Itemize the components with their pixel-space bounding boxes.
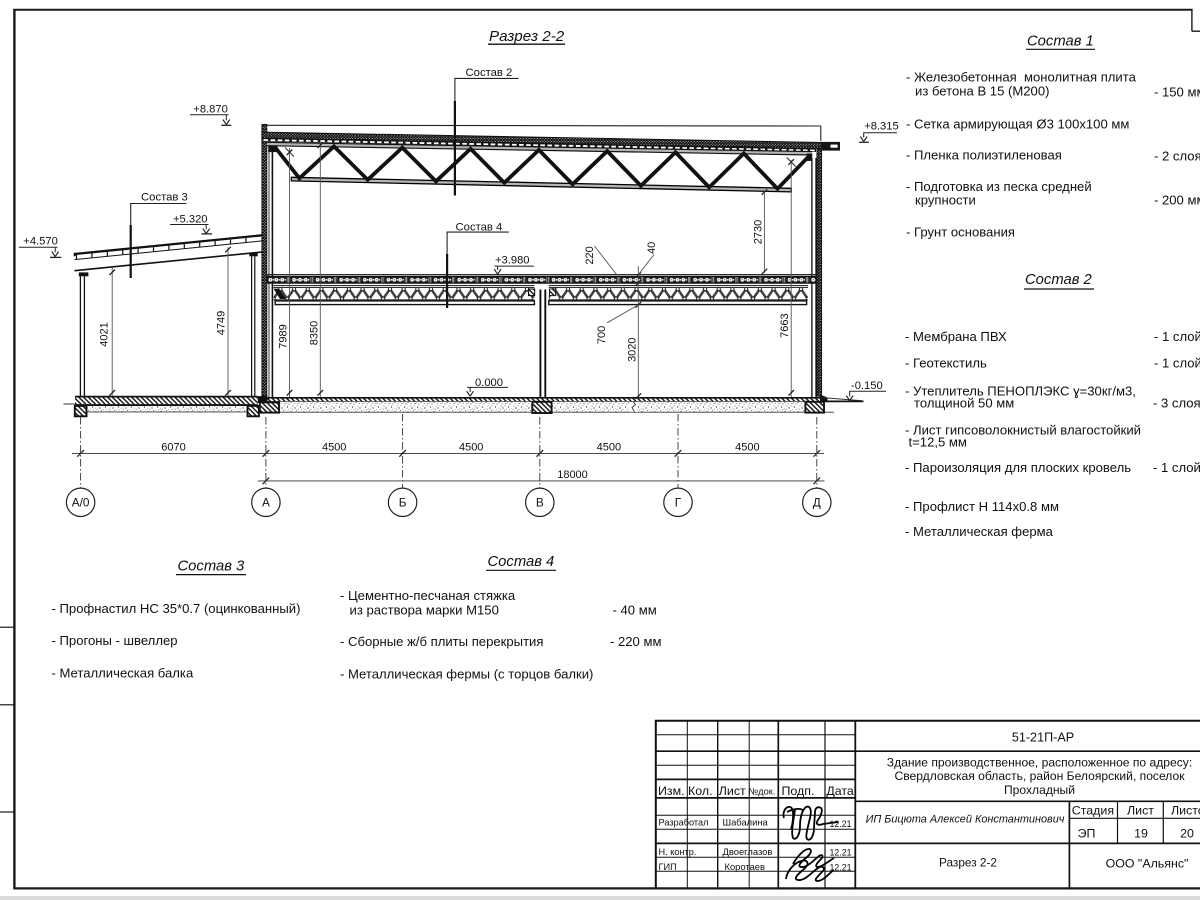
svg-text:+8.870: +8.870 (193, 104, 228, 116)
svg-text:4500: 4500 (322, 441, 346, 453)
svg-text:крупности: крупности (915, 193, 976, 208)
svg-text:- 40 мм: - 40 мм (613, 603, 657, 618)
svg-text:Лист: Лист (1127, 803, 1154, 817)
svg-text:ИП Бицюта Алексей Константинов: ИП Бицюта Алексей Константинович (866, 814, 1065, 826)
svg-text:- 2 слоя: - 2 слоя (1154, 149, 1200, 164)
svg-text:- 150 мм: - 150 мм (1154, 85, 1200, 100)
svg-text:- Геотекстиль: - Геотекстиль (905, 356, 987, 371)
svg-text:- 1 слой: - 1 слой (1154, 329, 1200, 344)
svg-text:А/0: А/0 (72, 496, 90, 510)
svg-text:- Профнастил НС 35*0.7 (оцинко: - Профнастил НС 35*0.7 (оцинкованный) (52, 601, 301, 616)
svg-text:Дата: Дата (826, 784, 854, 798)
svg-text:- Цементно-песчаная стяжка: - Цементно-песчаная стяжка (340, 588, 516, 603)
svg-text:Разрез 2-2: Разрез 2-2 (489, 28, 565, 45)
svg-text:- Металлическая балка: - Металлическая балка (52, 666, 194, 681)
svg-text:Разрез 2-2: Разрез 2-2 (939, 856, 997, 870)
svg-text:4500: 4500 (735, 441, 759, 453)
svg-text:- 1 слой: - 1 слой (1154, 356, 1200, 371)
svg-text:+8.315: +8.315 (864, 121, 899, 133)
svg-text:Состав 2: Состав 2 (466, 67, 513, 79)
svg-text:А: А (262, 496, 270, 510)
svg-text:12.21: 12.21 (830, 847, 852, 857)
svg-text:из раствора марки М150: из раствора марки М150 (350, 603, 499, 618)
svg-text:20: 20 (1180, 826, 1194, 840)
svg-text:Состав 3: Состав 3 (141, 192, 188, 204)
svg-text:Д: Д (813, 496, 821, 510)
svg-text:из бетона В 15 (М200): из бетона В 15 (М200) (915, 84, 1050, 99)
svg-text:ЭП: ЭП (1078, 826, 1096, 840)
svg-text:- Сетка армирующая Ø3 100х100: - Сетка армирующая Ø3 100х100 мм (906, 117, 1129, 132)
svg-text:- Пленка полиэтиленовая: - Пленка полиэтиленовая (906, 148, 1062, 163)
svg-text:4749: 4749 (215, 311, 227, 335)
svg-text:Шабалина: Шабалина (723, 817, 769, 828)
svg-text:- Железобетонная монолитная п: - Железобетонная монолитная плита (906, 70, 1137, 85)
svg-text:толщиной 50 мм: толщиной 50 мм (914, 396, 1014, 411)
svg-text:Стадия: Стадия (1072, 803, 1114, 817)
svg-text:- Пароизоляция для плоских кро: - Пароизоляция для плоских кровель (905, 460, 1131, 475)
svg-text:Прохладный: Прохладный (1004, 783, 1075, 797)
svg-text:220: 220 (584, 246, 596, 264)
svg-text:- Металлическая фермы (с торцо: - Металлическая фермы (с торцов балки) (340, 667, 593, 682)
svg-text:Здание производственное, распо: Здание производственное, расположенное п… (887, 756, 1192, 770)
svg-text:- Мембрана ПВХ: - Мембрана ПВХ (905, 329, 1007, 344)
svg-text:- 220 мм: - 220 мм (610, 634, 662, 649)
svg-text:Состав 4: Состав 4 (488, 554, 555, 570)
svg-text:+3.980: +3.980 (495, 255, 530, 267)
svg-text:- Профлист Н 114х0.8 мм: - Профлист Н 114х0.8 мм (905, 499, 1059, 514)
svg-text:7989: 7989 (277, 324, 289, 348)
svg-text:Коротаев: Коротаев (725, 861, 766, 872)
svg-text:Листов: Листов (1171, 803, 1200, 817)
svg-text:- 3 слоя: - 3 слоя (1153, 396, 1200, 411)
svg-text:51-21П-АР: 51-21П-АР (1012, 731, 1074, 745)
svg-text:Лист: Лист (719, 784, 746, 798)
svg-text:7663: 7663 (779, 313, 791, 337)
svg-text:3020: 3020 (626, 337, 638, 361)
svg-text:4500: 4500 (459, 441, 483, 453)
svg-text:Г: Г (675, 496, 682, 510)
svg-text:19: 19 (1134, 826, 1148, 840)
svg-text:8350: 8350 (308, 321, 320, 345)
svg-text:t=12,5 мм: t=12,5 мм (909, 435, 967, 450)
svg-text:ГИП: ГИП (659, 862, 677, 872)
svg-text:Б: Б (399, 496, 407, 510)
svg-text:Состав 2: Состав 2 (1025, 272, 1093, 288)
svg-text:- Прогоны - швеллер: - Прогоны - швеллер (52, 633, 178, 648)
svg-text:4021: 4021 (98, 322, 110, 346)
svg-text:ООО "Альянс": ООО "Альянс" (1106, 857, 1189, 871)
svg-text:+5.320: +5.320 (173, 214, 208, 226)
svg-text:Подп.: Подп. (782, 784, 815, 798)
svg-text:Н. контр.: Н. контр. (659, 847, 697, 857)
svg-text:-0.150: -0.150 (851, 380, 883, 392)
svg-text:Свердловская область, район Бе: Свердловская область, район Белоярский, … (894, 769, 1185, 783)
svg-text:- Металлическая ферма: - Металлическая ферма (905, 524, 1054, 539)
svg-text:В: В (536, 496, 544, 510)
svg-text:Состав 1: Состав 1 (1027, 34, 1094, 50)
svg-text:- Сборные ж/б плиты перекрытия: - Сборные ж/б плиты перекрытия (340, 634, 543, 649)
svg-text:Двоеглазов: Двоеглазов (723, 846, 773, 857)
svg-text:№док.: №док. (748, 786, 775, 796)
svg-text:Разработал: Разработал (659, 818, 709, 828)
svg-text:Состав 3: Состав 3 (178, 559, 246, 575)
svg-text:- Грунт основания: - Грунт основания (906, 225, 1015, 240)
svg-text:6070: 6070 (161, 441, 185, 453)
svg-text:40: 40 (646, 242, 658, 254)
svg-text:2730: 2730 (752, 220, 764, 244)
svg-text:Кол.: Кол. (688, 784, 713, 798)
svg-text:- 200 мм: - 200 мм (1154, 193, 1200, 208)
svg-text:4500: 4500 (597, 441, 621, 453)
svg-text:Изм.: Изм. (658, 784, 685, 798)
svg-text:+4.570: +4.570 (23, 236, 58, 248)
svg-text:12.21: 12.21 (830, 819, 852, 829)
svg-text:700: 700 (596, 326, 608, 344)
svg-text:- 1 слой: - 1 слой (1153, 460, 1200, 475)
svg-text:18000: 18000 (557, 469, 588, 481)
